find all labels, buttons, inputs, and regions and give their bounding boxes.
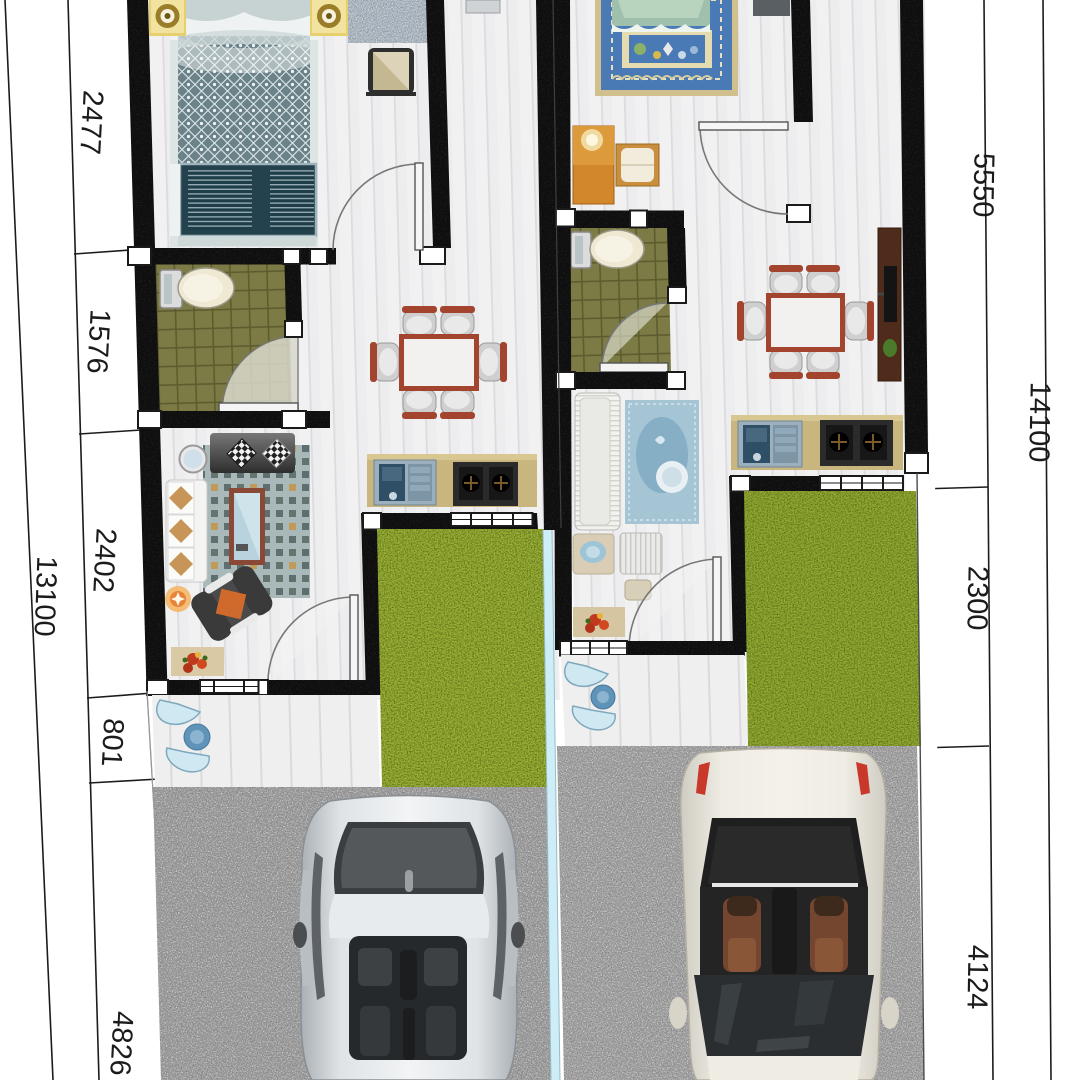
svg-text:2300: 2300 xyxy=(960,566,993,631)
svg-text:2402: 2402 xyxy=(86,527,121,593)
svg-text:2477: 2477 xyxy=(73,89,108,155)
svg-text:5550: 5550 xyxy=(966,153,999,218)
svg-text:14100: 14100 xyxy=(1022,382,1055,463)
svg-text:801: 801 xyxy=(95,717,129,767)
svg-text:4124: 4124 xyxy=(960,945,993,1010)
svg-text:4826: 4826 xyxy=(103,1010,138,1076)
svg-text:1576: 1576 xyxy=(80,308,115,374)
svg-text:13100: 13100 xyxy=(28,555,63,637)
